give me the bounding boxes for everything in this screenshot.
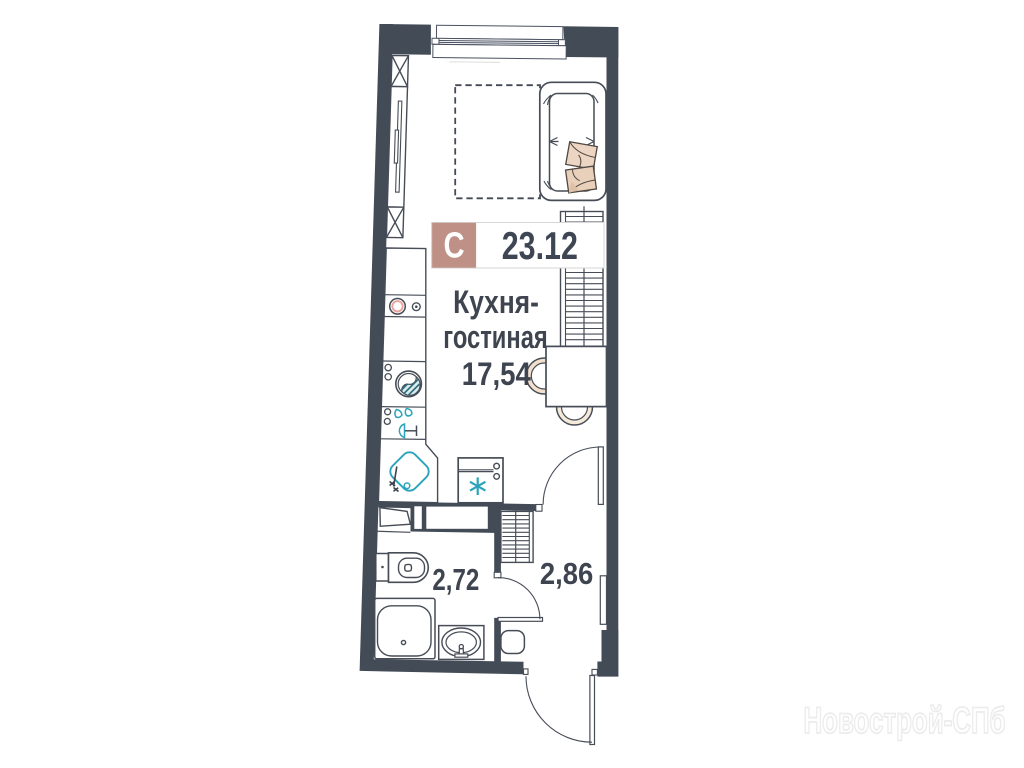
svg-text:2,72: 2,72 (432, 562, 479, 596)
svg-text:23.12: 23.12 (502, 224, 578, 267)
svg-text:гостиная: гостиная (443, 319, 547, 356)
svg-text:2,86: 2,86 (540, 558, 593, 592)
svg-text:Новострой-СПб: Новострой-СПб (803, 699, 1005, 741)
svg-text:Кухня-: Кухня- (453, 284, 539, 320)
svg-text:С: С (443, 225, 464, 266)
svg-text:17,54: 17,54 (462, 357, 531, 393)
